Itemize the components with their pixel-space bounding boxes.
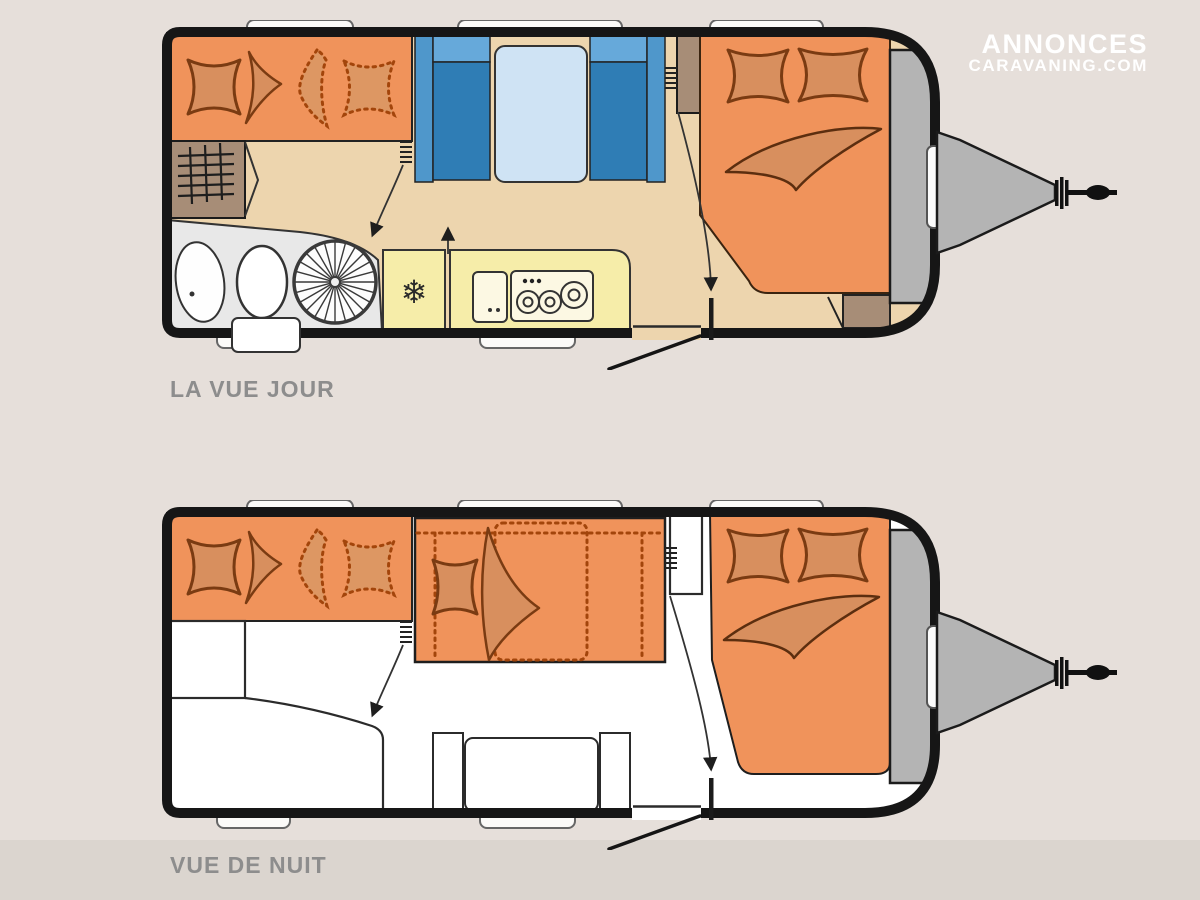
drawbar-hitch <box>937 612 1117 733</box>
cushion-dotted <box>344 541 394 595</box>
front-lounge-bench <box>167 513 412 621</box>
hitch-coupling-icon <box>1055 177 1117 209</box>
kitchen-outlines <box>433 733 630 811</box>
logo-line1: ANNONCES <box>969 30 1148 58</box>
cushion <box>188 60 240 114</box>
dinette <box>415 36 665 182</box>
double-bed <box>710 513 890 774</box>
day-view-label: LA VUE JOUR <box>170 376 335 403</box>
door-leaf <box>709 298 714 340</box>
door-swing-line <box>609 336 700 369</box>
drawbar <box>937 132 1055 253</box>
night-view-label: VUE DE NUIT <box>170 852 327 879</box>
fridge-snowflake-icon: ❄ <box>401 274 428 310</box>
cushion <box>188 540 240 594</box>
pillow <box>799 529 867 581</box>
site-logo: ANNONCES CARAVANING.COM <box>969 30 1148 75</box>
pillow <box>728 50 788 102</box>
logo-line2: CARAVANING.COM <box>969 57 1148 75</box>
pillow <box>799 49 867 101</box>
sink-unit-icon <box>473 272 507 322</box>
drawbar-hitch <box>937 132 1117 253</box>
stove-icon <box>511 271 593 321</box>
page-background: ❄ <box>0 0 1200 900</box>
drawbar <box>937 612 1055 733</box>
pillow <box>728 530 788 582</box>
front-lounge-bench <box>167 33 412 141</box>
door-swing-line <box>609 816 700 849</box>
dinette-converted-bed <box>415 518 665 662</box>
dinette-seat-right <box>590 62 647 180</box>
dinette-seat-left <box>433 62 490 180</box>
cushion-dotted <box>344 61 394 115</box>
heater-cabinet <box>167 141 245 218</box>
kitchen: ❄ <box>383 250 630 331</box>
toilet-hatch <box>232 318 300 352</box>
night-view-floorplan <box>150 500 1140 850</box>
toilet-icon <box>237 246 287 318</box>
pillow <box>433 560 477 614</box>
bed-step <box>843 295 890 328</box>
door-leaf <box>709 778 714 820</box>
double-bed <box>700 33 890 293</box>
wheel-icon <box>294 241 376 323</box>
dinette-table <box>495 46 587 182</box>
hitch-coupling-icon <box>1055 657 1117 689</box>
